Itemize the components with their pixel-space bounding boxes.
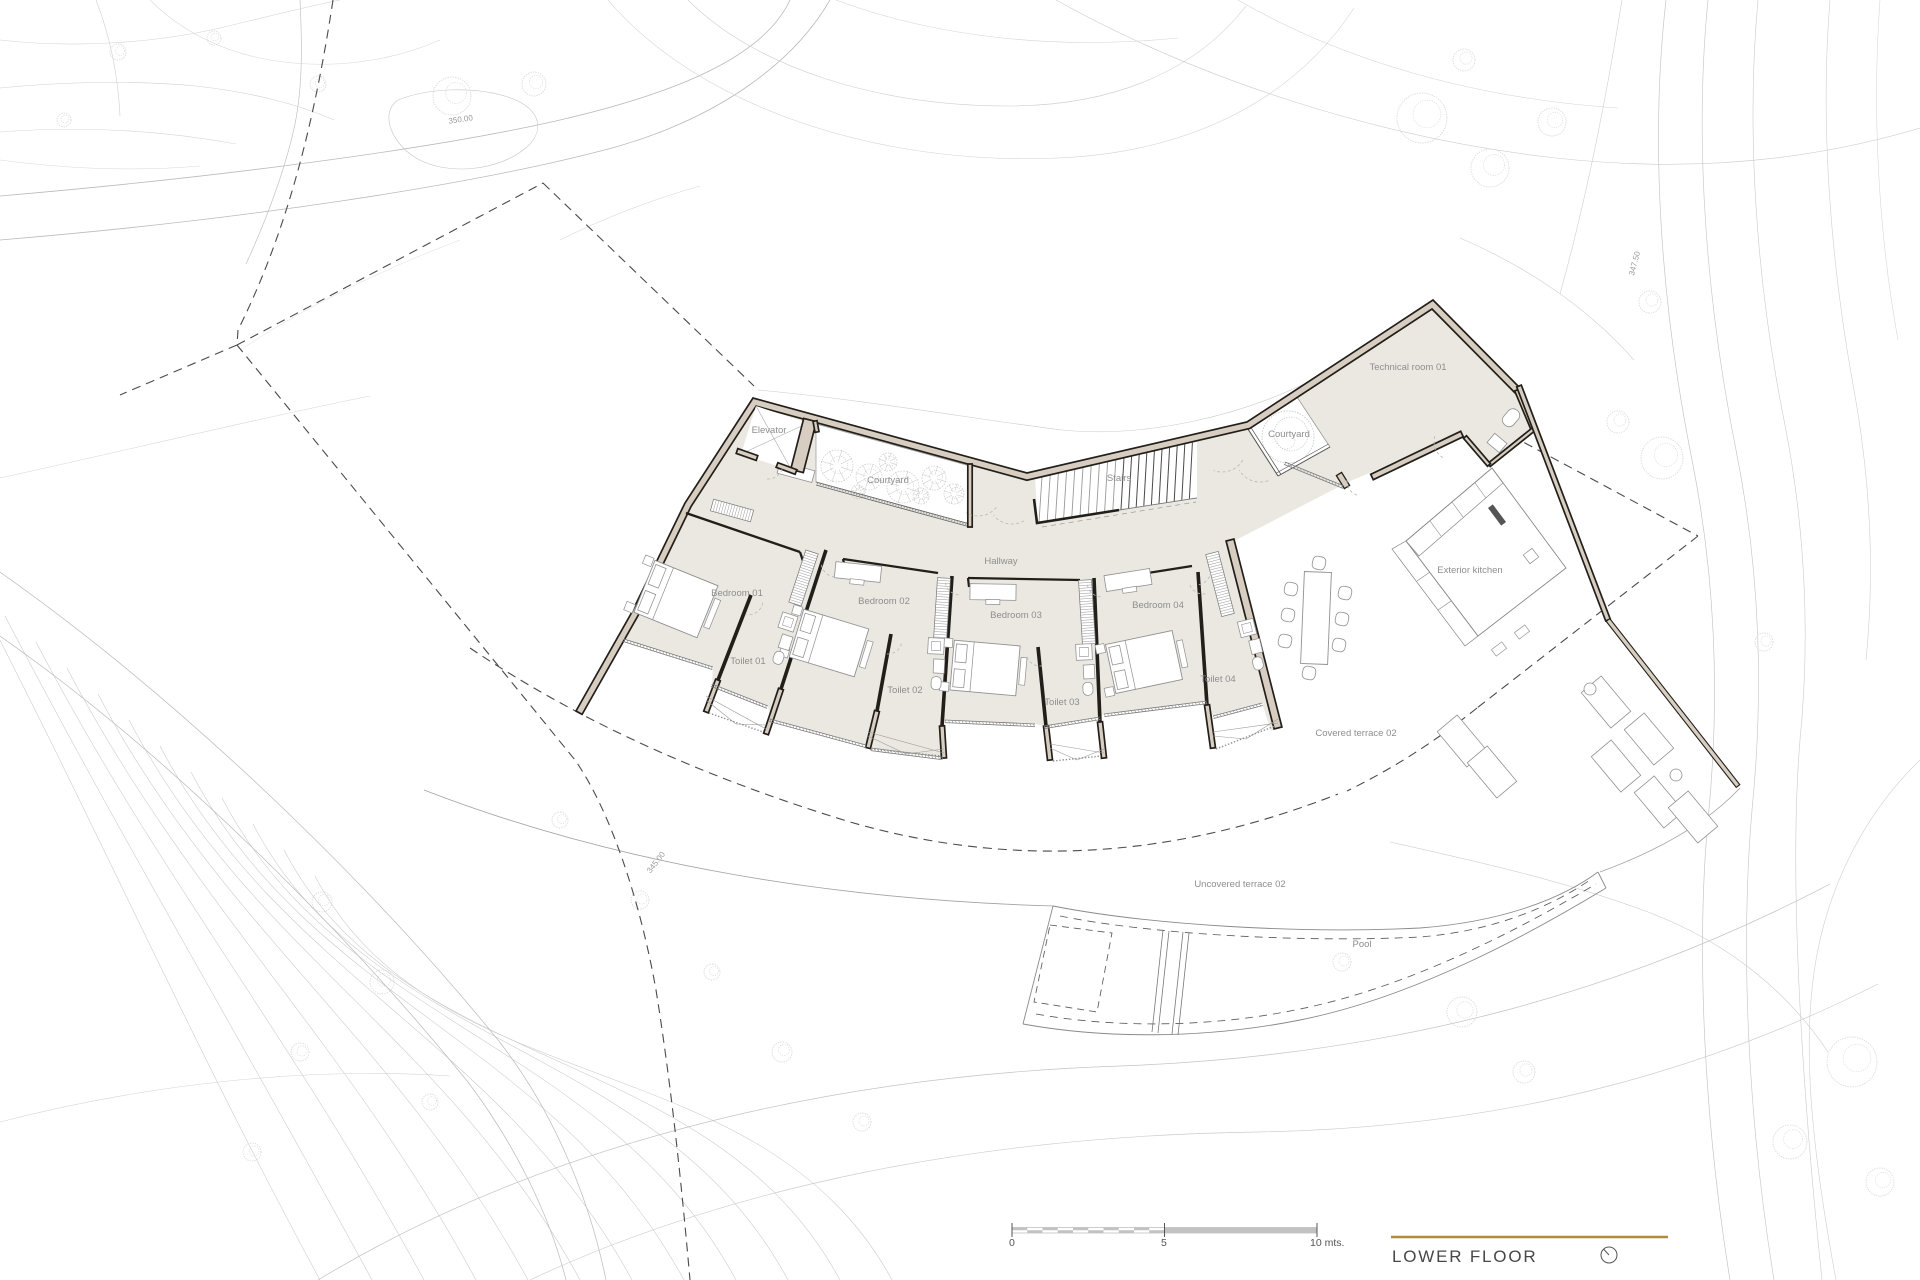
svg-text:Toilet 04: Toilet 04 [1200,674,1235,685]
svg-text:0: 0 [1009,1237,1015,1249]
svg-text:Courtyard: Courtyard [1268,429,1310,440]
svg-text:Pool: Pool [1352,939,1371,950]
svg-text:Courtyard: Courtyard [867,475,909,486]
svg-text:Elevator: Elevator [752,425,787,436]
svg-text:Uncovered terrace 02: Uncovered terrace 02 [1194,879,1285,890]
svg-text:Bedroom 03: Bedroom 03 [990,610,1042,621]
svg-text:Toilet 02: Toilet 02 [887,685,922,696]
svg-text:Stairs: Stairs [1107,473,1132,484]
svg-text:Toilet 03: Toilet 03 [1044,697,1079,708]
svg-text:LOWER FLOOR: LOWER FLOOR [1392,1247,1537,1266]
svg-text:Bedroom 02: Bedroom 02 [858,596,910,607]
svg-text:5: 5 [1161,1237,1167,1249]
svg-text:10 mts.: 10 mts. [1310,1237,1344,1249]
svg-text:Technical room 01: Technical room 01 [1369,362,1446,373]
svg-text:Toilet 01: Toilet 01 [730,656,765,667]
svg-text:Bedroom 04: Bedroom 04 [1132,600,1184,611]
svg-text:Hallway: Hallway [984,556,1018,567]
svg-text:Covered terrace 02: Covered terrace 02 [1315,728,1396,739]
svg-text:Exterior kitchen: Exterior kitchen [1437,565,1502,576]
svg-text:Bedroom 01: Bedroom 01 [711,588,763,599]
